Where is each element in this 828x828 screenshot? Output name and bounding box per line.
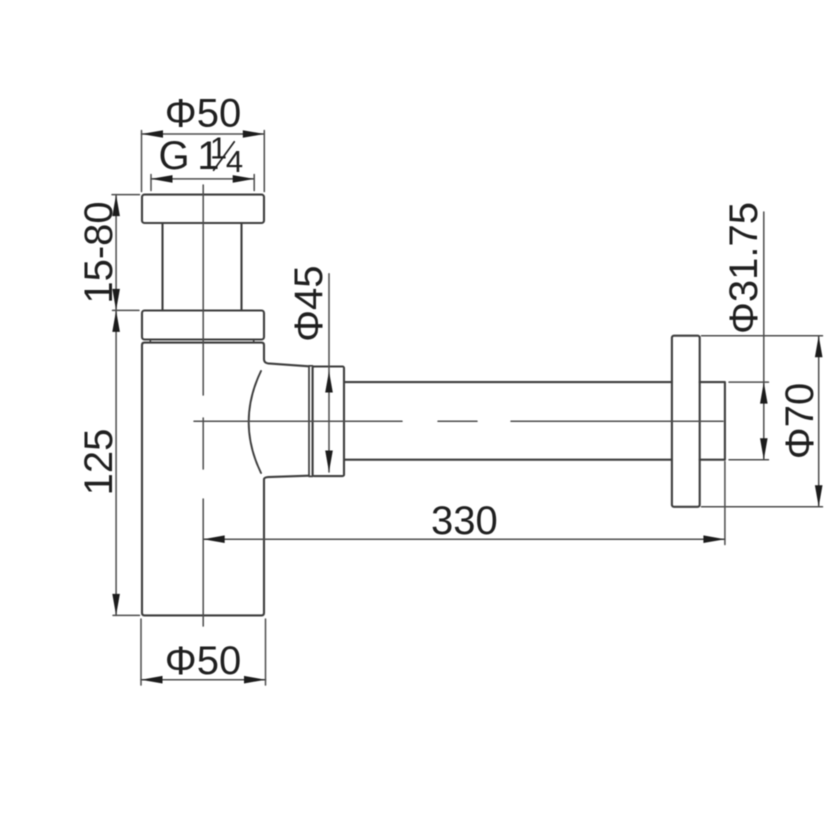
svg-text:G: G <box>159 134 190 178</box>
svg-text:Φ50: Φ50 <box>165 92 241 136</box>
svg-text:125: 125 <box>77 429 121 496</box>
svg-text:1: 1 <box>210 131 227 166</box>
svg-text:Φ70: Φ70 <box>778 383 822 459</box>
svg-text:Φ50: Φ50 <box>165 639 241 683</box>
svg-text:Φ31.75: Φ31.75 <box>722 202 766 334</box>
svg-text:Φ45: Φ45 <box>287 265 331 341</box>
svg-text:15-80: 15-80 <box>77 201 121 303</box>
svg-text:330: 330 <box>431 499 498 543</box>
svg-text:4: 4 <box>226 144 243 179</box>
